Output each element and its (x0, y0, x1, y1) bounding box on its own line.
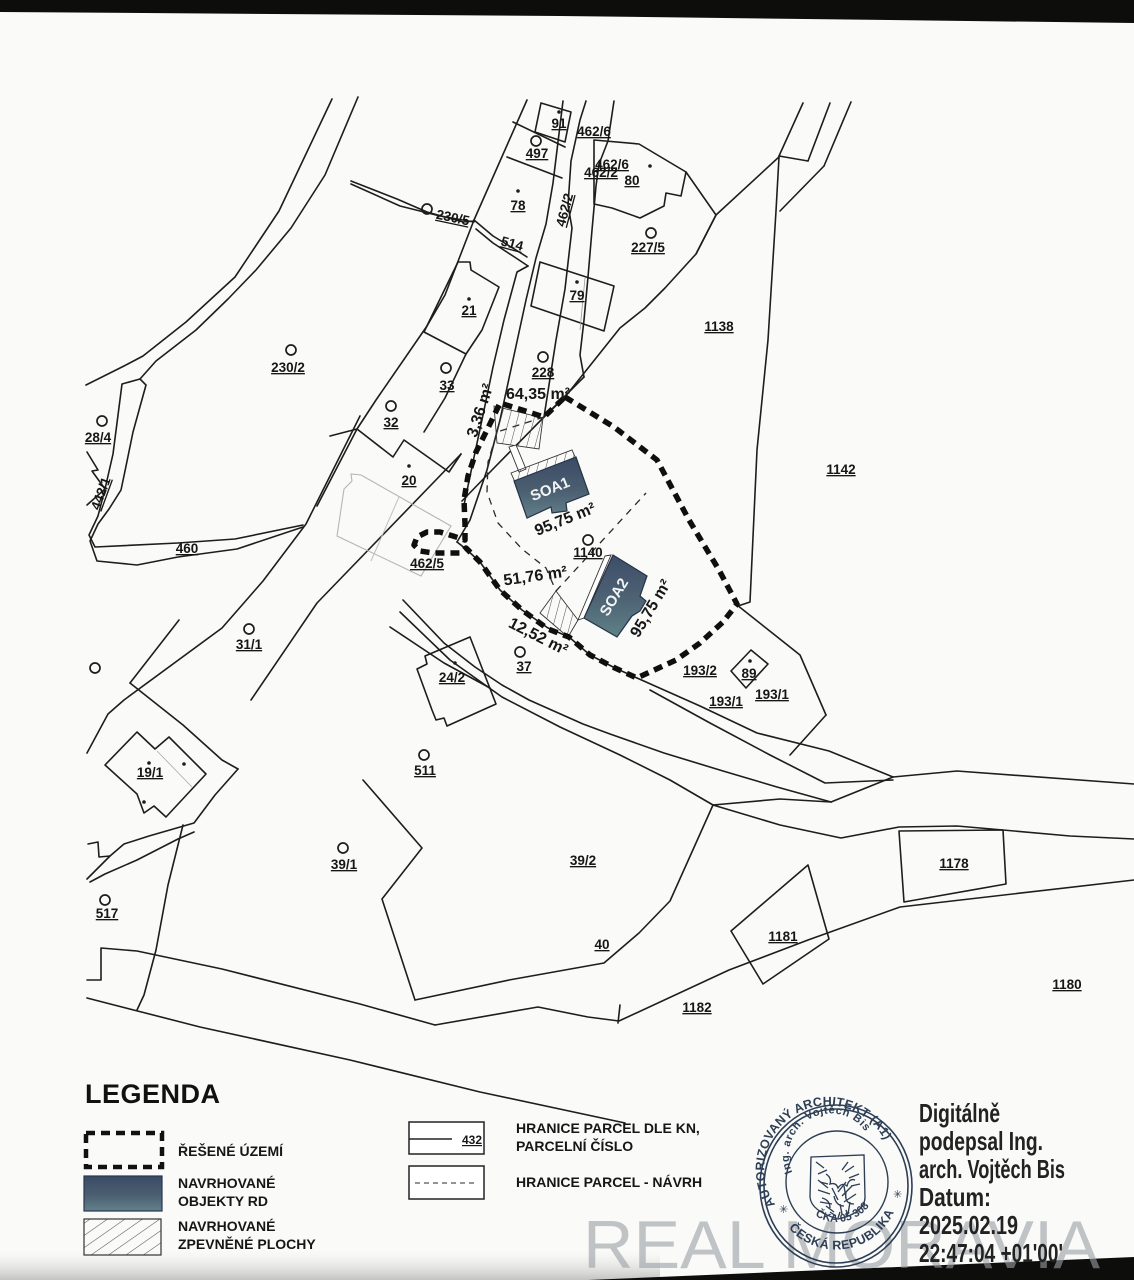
svg-text:22:47:04 +01'00': 22:47:04 +01'00' (919, 1238, 1063, 1268)
svg-text:OBJEKTY RD: OBJEKTY RD (178, 1193, 268, 1209)
svg-text:31/1: 31/1 (236, 637, 263, 652)
svg-text:2025.02.19: 2025.02.19 (919, 1210, 1018, 1240)
svg-text:podepsal Ing.: podepsal Ing. (919, 1126, 1043, 1156)
svg-text:21: 21 (461, 303, 477, 318)
svg-text:462/6: 462/6 (577, 124, 611, 139)
svg-text:LEGENDA: LEGENDA (85, 1079, 221, 1109)
svg-text:NAVRHOVANÉ: NAVRHOVANÉ (178, 1175, 276, 1191)
svg-text:37: 37 (516, 659, 531, 674)
svg-text:193/1: 193/1 (755, 687, 789, 702)
svg-text:28/4: 28/4 (85, 430, 112, 445)
svg-text:39/1: 39/1 (331, 857, 358, 872)
svg-text:Datum:: Datum: (919, 1182, 991, 1212)
svg-text:Digitálně: Digitálně (919, 1098, 1000, 1128)
svg-text:1182: 1182 (682, 1000, 711, 1015)
svg-text:ZPEVNĚNÉ PLOCHY: ZPEVNĚNÉ PLOCHY (178, 1235, 316, 1252)
svg-text:NAVRHOVANÉ: NAVRHOVANÉ (178, 1218, 276, 1234)
svg-text:511: 511 (414, 763, 436, 778)
svg-text:79: 79 (569, 288, 584, 303)
svg-text:91: 91 (551, 116, 567, 131)
svg-text:ŘEŠENÉ ÚZEMÍ: ŘEŠENÉ ÚZEMÍ (178, 1142, 284, 1159)
svg-text:arch. Vojtěch Bis: arch. Vojtěch Bis (919, 1154, 1065, 1184)
svg-text:✳: ✳ (893, 1189, 902, 1201)
svg-text:80: 80 (624, 173, 639, 188)
svg-text:193/2: 193/2 (683, 663, 717, 678)
svg-text:24/2: 24/2 (439, 670, 465, 685)
svg-text:64,35 m²: 64,35 m² (506, 386, 570, 403)
svg-text:228: 228 (532, 365, 555, 380)
svg-text:33: 33 (439, 378, 455, 393)
svg-text:1138: 1138 (704, 319, 734, 334)
svg-text:1178: 1178 (939, 856, 969, 871)
svg-text:1142: 1142 (826, 462, 855, 477)
svg-text:517: 517 (96, 906, 119, 921)
svg-text:PARCELNÍ ČÍSLO: PARCELNÍ ČÍSLO (516, 1137, 633, 1154)
svg-text:462/2: 462/2 (584, 165, 618, 180)
svg-text:39/2: 39/2 (570, 853, 596, 868)
svg-text:230/2: 230/2 (271, 360, 305, 375)
svg-text:432: 432 (462, 1133, 482, 1147)
svg-text:462/5: 462/5 (410, 556, 444, 571)
svg-text:HRANICE PARCEL - NÁVRH: HRANICE PARCEL - NÁVRH (516, 1174, 702, 1190)
svg-text:32: 32 (383, 415, 398, 430)
svg-text:1181: 1181 (768, 929, 798, 944)
svg-text:460: 460 (176, 541, 199, 556)
svg-text:✳: ✳ (779, 1204, 788, 1216)
svg-text:20: 20 (401, 473, 416, 488)
svg-text:HRANICE PARCEL DLE KN,: HRANICE PARCEL DLE KN, (516, 1120, 700, 1136)
svg-text:193/1: 193/1 (709, 694, 743, 709)
svg-text:40: 40 (594, 937, 609, 952)
svg-text:1140: 1140 (573, 545, 602, 560)
svg-text:78: 78 (510, 198, 526, 213)
svg-text:19/1: 19/1 (137, 765, 164, 780)
svg-text:1180: 1180 (1052, 977, 1081, 992)
svg-text:227/5: 227/5 (631, 240, 665, 255)
svg-text:89: 89 (741, 666, 756, 681)
svg-text:497: 497 (526, 146, 549, 161)
